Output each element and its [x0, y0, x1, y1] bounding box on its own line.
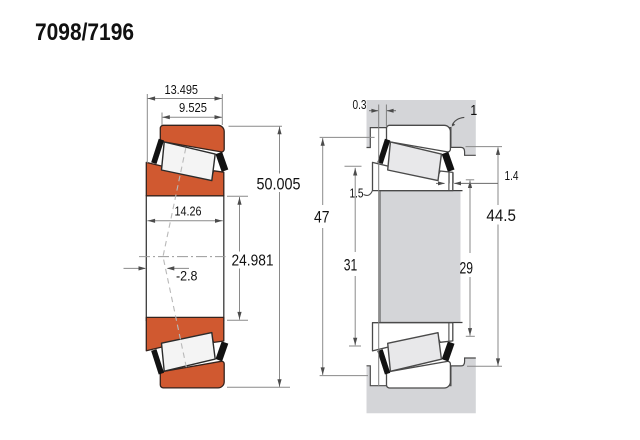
svg-text:9.525: 9.525	[179, 100, 207, 115]
svg-text:1: 1	[470, 102, 477, 119]
svg-text:24.981: 24.981	[232, 253, 274, 270]
svg-text:14.26: 14.26	[175, 204, 202, 219]
svg-text:29: 29	[460, 259, 474, 278]
svg-text:7098/7196: 7098/7196	[35, 19, 134, 46]
svg-text:13.495: 13.495	[165, 82, 199, 97]
svg-text:1.4: 1.4	[505, 168, 519, 183]
svg-text:44.5: 44.5	[486, 206, 516, 225]
svg-text:50.005: 50.005	[257, 175, 301, 194]
svg-text:47: 47	[314, 208, 330, 227]
svg-text:-2.8: -2.8	[176, 268, 198, 284]
svg-text:0.3: 0.3	[353, 98, 367, 112]
svg-text:1.5: 1.5	[350, 186, 364, 201]
svg-text:31: 31	[344, 256, 358, 275]
